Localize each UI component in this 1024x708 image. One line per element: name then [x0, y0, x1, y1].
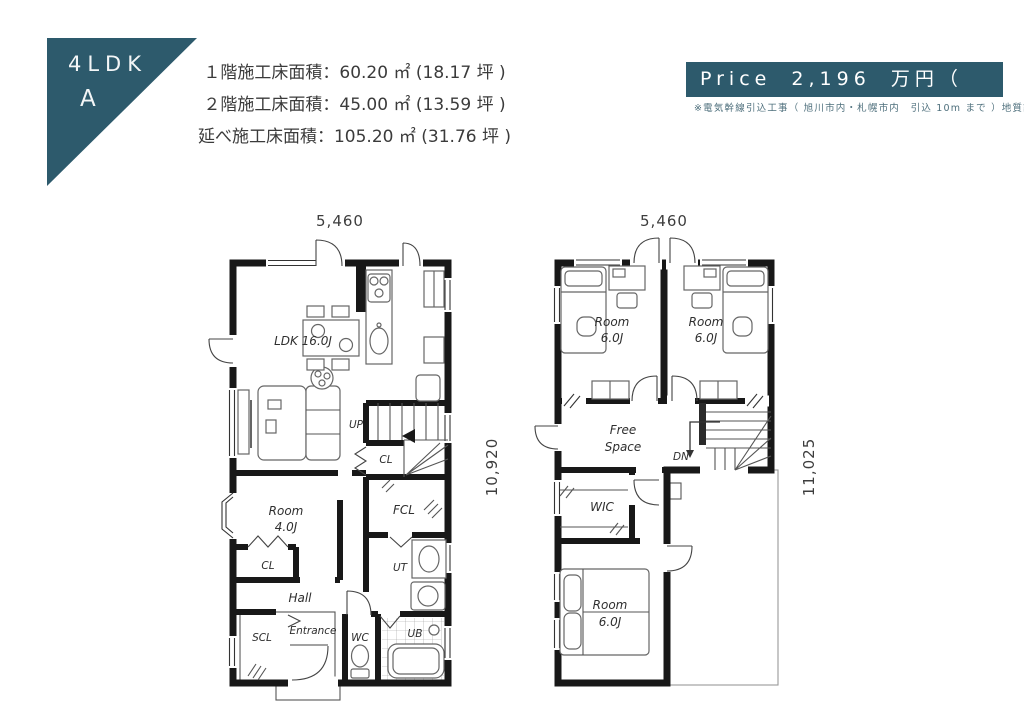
price-note: ※電気幹線引込工事（ 旭川市内・札幌市内 引込 10m まで ）地質調査費含む	[694, 100, 1024, 114]
floor2-plan	[535, 238, 778, 685]
label-ldk: LDK 16.0J	[274, 334, 332, 348]
f2-stairs	[686, 403, 771, 470]
label-free-space-1: Free	[610, 423, 637, 437]
label-room4-name: Room	[269, 504, 304, 518]
area-line-2f: ２階施工床面積：45.00 ㎡ (13.59 坪 )	[182, 89, 527, 121]
label-room2-size: 6.0J	[695, 331, 718, 345]
bath-faucet	[429, 625, 439, 635]
rug	[258, 386, 306, 460]
desk-chair-left	[617, 293, 637, 308]
label-room3-name: Room	[593, 598, 628, 612]
label-scl: SCL	[252, 632, 272, 644]
kitchen-wall-stub	[356, 264, 366, 312]
sofa	[306, 386, 340, 460]
tv-board	[238, 390, 249, 454]
kitchen-sink	[370, 328, 388, 354]
label-entrance: Entrance	[289, 625, 336, 637]
label-room1-size: 6.0J	[601, 331, 624, 345]
refrigerator	[424, 337, 444, 363]
plan-type-label: 4LDK	[68, 52, 147, 76]
round-chair-left	[577, 317, 596, 336]
cupboard	[416, 375, 440, 401]
f2-width-dimension: 5,460	[640, 212, 688, 230]
label-hall: Hall	[288, 591, 312, 605]
label-free-space-2: Space	[605, 440, 642, 454]
shaft-box	[670, 483, 681, 499]
f1-living-furniture	[238, 306, 359, 460]
label-room2-name: Room	[689, 315, 724, 329]
area-line-total: 延べ施工床面積：105.20 ㎡ (31.76 坪 )	[182, 121, 527, 153]
label-stair-cl: CL	[379, 454, 392, 466]
lower-roof-outline	[667, 470, 778, 685]
f1-height-dimension: 10,920	[483, 438, 501, 497]
label-up: UP	[349, 419, 364, 431]
plan-variant-label: A	[80, 86, 98, 112]
label-room1-name: Room	[595, 315, 630, 329]
label-ub: UB	[408, 628, 423, 640]
label-room3-size: 6.0J	[599, 615, 622, 629]
label-ut: UT	[393, 562, 409, 574]
f2-height-dimension: 11,025	[800, 438, 818, 497]
toilet	[352, 645, 369, 667]
label-room4-size: 4.0J	[275, 520, 298, 534]
label-wc: WC	[351, 632, 369, 644]
floorplan-flyer: 4LDK A １階施工床面積：60.20 ㎡ (18.17 坪 ) ２階施工床面…	[0, 0, 1024, 708]
round-chair-right	[733, 317, 752, 336]
price-banner: Price 2,196 万円（	[686, 62, 1003, 97]
f1-kitchen	[366, 270, 444, 401]
label-room4-cl: CL	[261, 560, 274, 572]
label-fcl: FCL	[393, 503, 415, 517]
entrance-tile-floor	[240, 612, 335, 683]
label-dn: DN	[673, 451, 689, 463]
desk-chair-right	[692, 293, 712, 308]
f1-width-dimension: 5,460	[316, 212, 364, 230]
floor-area-summary: １階施工床面積：60.20 ㎡ (18.17 坪 ) ２階施工床面積：45.00…	[182, 57, 527, 153]
area-line-1f: １階施工床面積：60.20 ㎡ (18.17 坪 )	[182, 57, 527, 89]
f2-bedroom3-furniture	[560, 569, 649, 655]
label-wic: WIC	[590, 500, 614, 514]
